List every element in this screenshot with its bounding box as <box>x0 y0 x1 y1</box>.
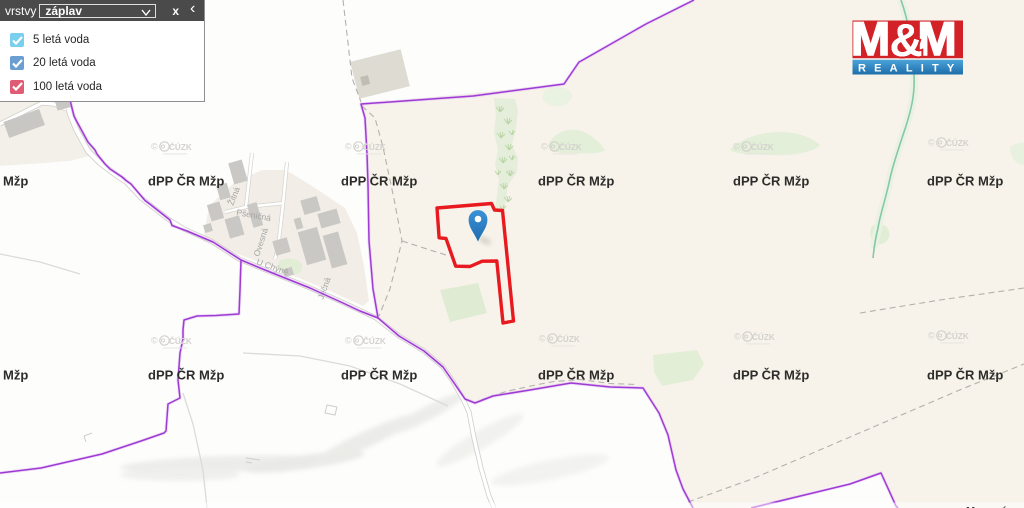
svg-text:M: M <box>851 12 890 65</box>
svg-text:dPP ČR Mžp: dPP ČR Mžp <box>927 368 1003 383</box>
svg-text:ČÚZK: ČÚZK <box>363 335 386 346</box>
svg-text:dPP ČR Mžp: dPP ČR Mžp <box>341 368 417 383</box>
svg-text:dPP ČR Mžp: dPP ČR Mžp <box>927 174 1003 189</box>
svg-text:Mžp: Mžp <box>3 174 28 189</box>
svg-text:©: © <box>345 336 352 346</box>
svg-text:dPP ČR Mžp: dPP ČR Mžp <box>733 174 809 189</box>
svg-text:dPP ČR Mžp: dPP ČR Mžp <box>341 174 417 189</box>
svg-text:dPP ČR Mžp: dPP ČR Mžp <box>733 368 809 383</box>
svg-text:&: & <box>890 14 923 66</box>
svg-text:dPP ČR Mžp: dPP ČR Mžp <box>148 368 224 383</box>
svg-text:REALITY: REALITY <box>858 63 962 75</box>
svg-text:dPP ČR Mžp: dPP ČR Mžp <box>148 174 224 189</box>
svg-text:Mžp: Mžp <box>3 368 28 383</box>
svg-text:dPP ČR Mžp: dPP ČR Mžp <box>538 368 614 383</box>
svg-text:M: M <box>918 12 957 65</box>
svg-text:dPP ČR Mžp: dPP ČR Mžp <box>538 174 614 189</box>
